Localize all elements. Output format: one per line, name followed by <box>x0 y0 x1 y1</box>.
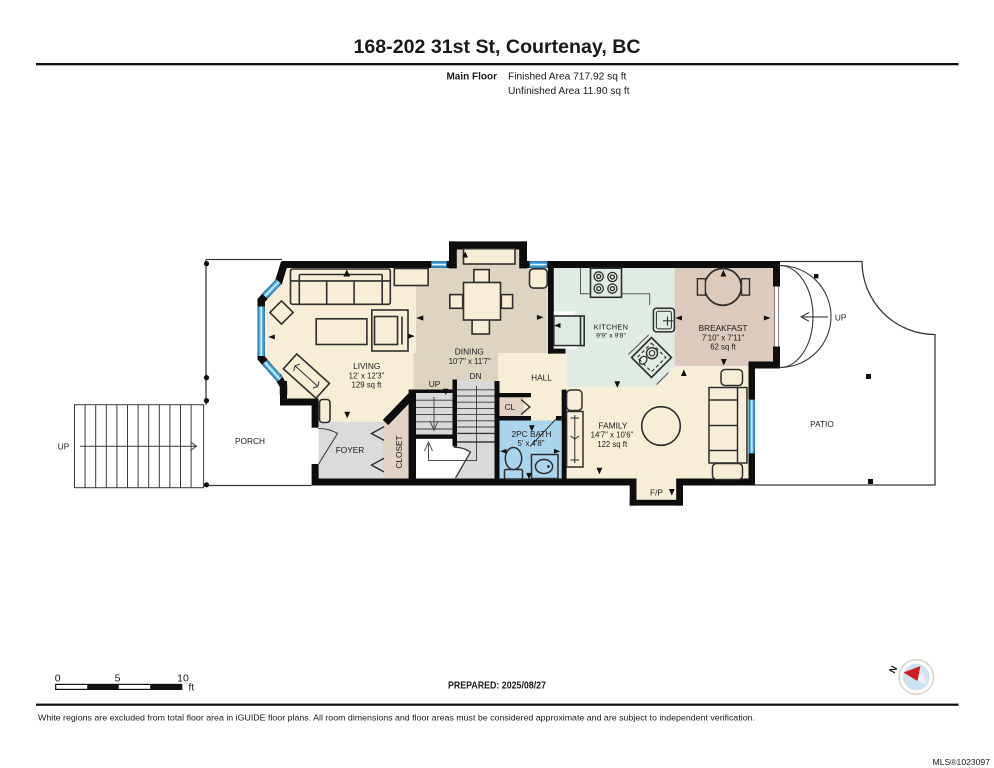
svg-text:UP: UP <box>429 379 441 389</box>
svg-text:PREPARED: 2025/08/27: PREPARED: 2025/08/27 <box>448 680 546 691</box>
svg-text:FAMILY: FAMILY <box>599 420 628 430</box>
svg-text:CLOSET: CLOSET <box>394 435 404 468</box>
svg-text:Unfinished Area 11.90 sq ft: Unfinished Area 11.90 sq ft <box>508 86 630 97</box>
svg-text:F/P: F/P <box>650 487 663 497</box>
svg-text:10'7" x 11'7": 10'7" x 11'7" <box>449 357 491 366</box>
svg-text:DN: DN <box>470 371 482 381</box>
svg-text:Main Floor: Main Floor <box>446 72 497 83</box>
svg-text:N: N <box>887 664 900 675</box>
svg-text:10: 10 <box>177 672 189 684</box>
svg-text:168-202 31st St, Courtenay, BC: 168-202 31st St, Courtenay, BC <box>354 36 641 58</box>
svg-text:129 sq ft: 129 sq ft <box>352 381 383 390</box>
svg-text:12' x 12'3": 12' x 12'3" <box>349 371 385 380</box>
svg-text:9'9" x 9'8": 9'9" x 9'8" <box>596 333 626 340</box>
svg-text:MLS®1023097: MLS®1023097 <box>933 757 991 767</box>
svg-text:14'7" x 10'6": 14'7" x 10'6" <box>591 431 634 440</box>
svg-text:62 sq ft: 62 sq ft <box>710 343 736 352</box>
svg-text:2PC BATH: 2PC BATH <box>512 429 552 439</box>
svg-text:PORCH: PORCH <box>235 436 265 446</box>
svg-text:UP: UP <box>835 312 847 322</box>
svg-text:White regions are excluded fro: White regions are excluded from total fl… <box>38 712 755 722</box>
svg-text:CL: CL <box>504 402 515 412</box>
svg-text:ft: ft <box>189 683 195 694</box>
svg-text:DINING: DINING <box>455 347 484 357</box>
svg-text:KITCHEN: KITCHEN <box>594 322 629 331</box>
svg-text:FOYER: FOYER <box>336 445 365 455</box>
svg-text:0: 0 <box>55 672 61 684</box>
svg-text:UP: UP <box>58 442 70 452</box>
svg-text:HALL: HALL <box>531 372 552 382</box>
svg-text:BREAKFAST: BREAKFAST <box>699 323 748 333</box>
svg-text:7'10" x 7'11": 7'10" x 7'11" <box>702 333 744 342</box>
svg-text:Finished Area 717.92 sq ft: Finished Area 717.92 sq ft <box>508 72 627 83</box>
svg-text:PATIO: PATIO <box>810 419 834 429</box>
svg-text:5: 5 <box>115 672 121 684</box>
svg-text:LIVING: LIVING <box>353 361 380 371</box>
svg-text:5' x 4'8": 5' x 4'8" <box>518 439 545 448</box>
svg-text:122 sq ft: 122 sq ft <box>597 440 628 449</box>
